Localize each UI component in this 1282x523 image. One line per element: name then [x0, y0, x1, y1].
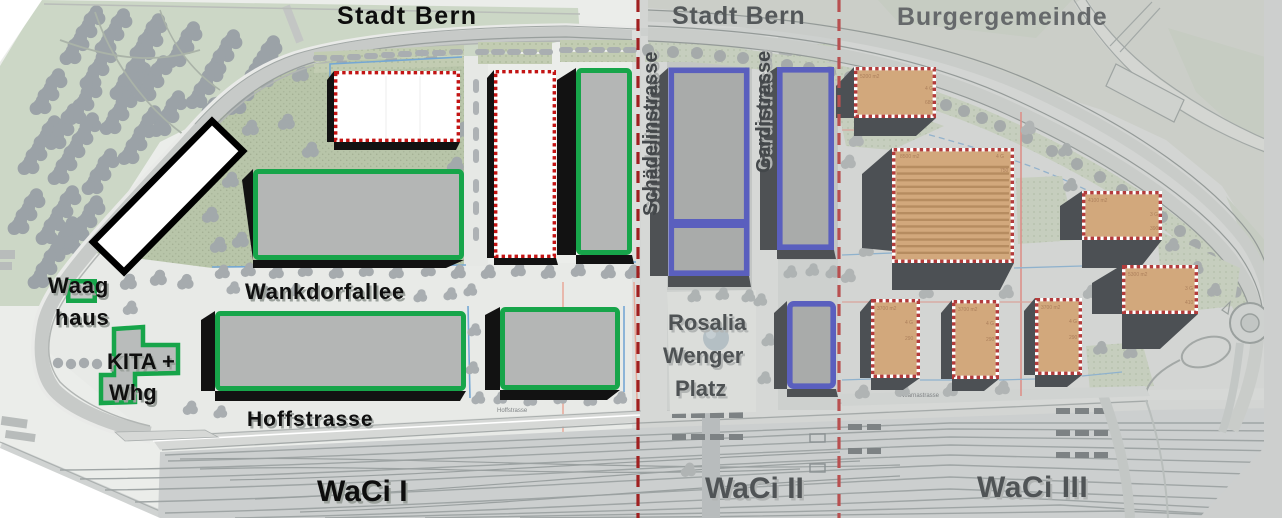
svg-text:Schädelinstrasse: Schädelinstrasse — [640, 51, 662, 216]
svg-text:4100 m2: 4100 m2 — [1088, 198, 1108, 204]
svg-text:4 G: 4 G — [986, 321, 994, 327]
svg-text:Wenger: Wenger — [663, 343, 744, 368]
svg-text:5200 m2: 5200 m2 — [860, 74, 880, 80]
svg-text:290: 290 — [905, 336, 914, 342]
svg-text:WaCi III: WaCi III — [977, 471, 1088, 504]
svg-text:WaCi II: WaCi II — [705, 472, 804, 505]
svg-text:4 G: 4 G — [925, 86, 933, 92]
svg-text:750: 750 — [1000, 168, 1009, 174]
svg-text:Platz: Platz — [675, 376, 726, 401]
svg-text:Stadt Bern: Stadt Bern — [337, 2, 477, 30]
svg-text:Waag: Waag — [48, 273, 109, 298]
svg-text:8500 m2: 8500 m2 — [900, 154, 920, 160]
svg-text:KITA +: KITA + — [107, 349, 175, 374]
svg-text:Hoffstrasse: Hoffstrasse — [247, 408, 374, 431]
svg-text:410: 410 — [1185, 300, 1194, 306]
svg-text:3700 m2: 3700 m2 — [958, 307, 978, 313]
svg-text:3 G: 3 G — [1150, 212, 1158, 218]
svg-text:Whg: Whg — [109, 380, 157, 405]
svg-text:5300 m2: 5300 m2 — [1128, 272, 1148, 278]
svg-text:390: 390 — [1150, 226, 1159, 232]
svg-text:Stadt Bern: Stadt Bern — [672, 2, 805, 30]
svg-text:290: 290 — [986, 337, 995, 343]
svg-text:Burgergemeinde: Burgergemeinde — [897, 3, 1108, 31]
svg-text:haus: haus — [55, 305, 110, 330]
svg-text:3 G: 3 G — [1185, 286, 1193, 292]
svg-text:290: 290 — [1069, 335, 1078, 341]
svg-text:680: 680 — [925, 100, 934, 106]
svg-text:4 G: 4 G — [905, 320, 913, 326]
svg-text:4 G: 4 G — [996, 154, 1004, 160]
svg-text:3700 m2: 3700 m2 — [877, 306, 897, 312]
svg-text:Hoffstrasse: Hoffstrasse — [497, 408, 528, 414]
svg-text:4 G: 4 G — [1069, 319, 1077, 325]
svg-text:WaCi I: WaCi I — [317, 475, 408, 508]
svg-text:Gardistrasse: Gardistrasse — [753, 51, 775, 173]
svg-text:Rosalia: Rosalia — [668, 310, 747, 335]
svg-text:3700 m2: 3700 m2 — [1041, 305, 1061, 311]
svg-text:Wankdorfallee: Wankdorfallee — [245, 279, 405, 304]
